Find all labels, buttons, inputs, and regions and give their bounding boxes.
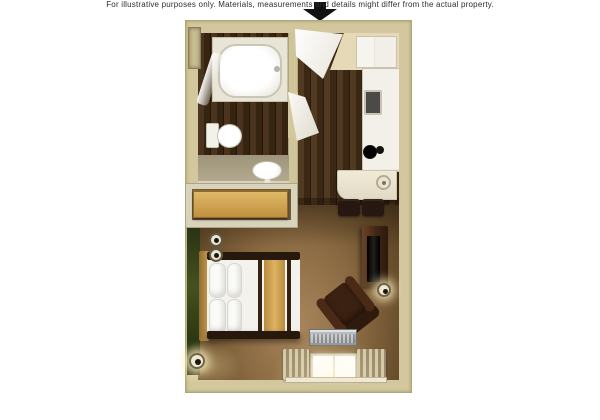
bed-fold-line-1 [258, 259, 262, 332]
cooktop-burner-large [363, 145, 377, 159]
dining-chair-left [338, 199, 360, 216]
refrigerator-cabinet [356, 36, 397, 68]
pillow-2 [227, 263, 242, 298]
bathtub-drain [274, 66, 280, 72]
dining-chair-right [362, 199, 384, 216]
cooktop-burner-small [376, 146, 384, 154]
bed-frame-bottom [207, 331, 300, 339]
dresser [193, 190, 288, 218]
table-lamp [376, 175, 391, 190]
toilet-bowl [217, 124, 242, 148]
table-lamp-center [382, 181, 386, 185]
television [367, 236, 380, 282]
wall-sconce-lower [209, 248, 223, 262]
wall-sconce-lower-center [214, 253, 219, 258]
bathroom-entry-wall-lower [288, 138, 298, 183]
wall-niche [188, 27, 201, 69]
vanity-sink [252, 161, 282, 180]
pillow-1 [209, 263, 226, 298]
corner-floor-lamp-center [195, 359, 201, 365]
corner-floor-lamp [189, 353, 205, 369]
floor-lamp-by-tv-center [383, 289, 388, 294]
wall-sconce-upper-center [214, 238, 219, 243]
bathtub [218, 44, 282, 98]
pillow-3 [209, 299, 226, 334]
pillow-4 [227, 299, 242, 334]
light-pool-window [270, 335, 390, 380]
floor-lamp-by-tv [377, 283, 391, 297]
bed-fold-line-2 [287, 259, 291, 332]
wall-sconce-upper [209, 233, 223, 247]
disclaimer-caption: For illustrative purposes only. Material… [0, 0, 600, 9]
bed-runner-tan [264, 259, 285, 332]
kitchen-sink [364, 90, 382, 115]
